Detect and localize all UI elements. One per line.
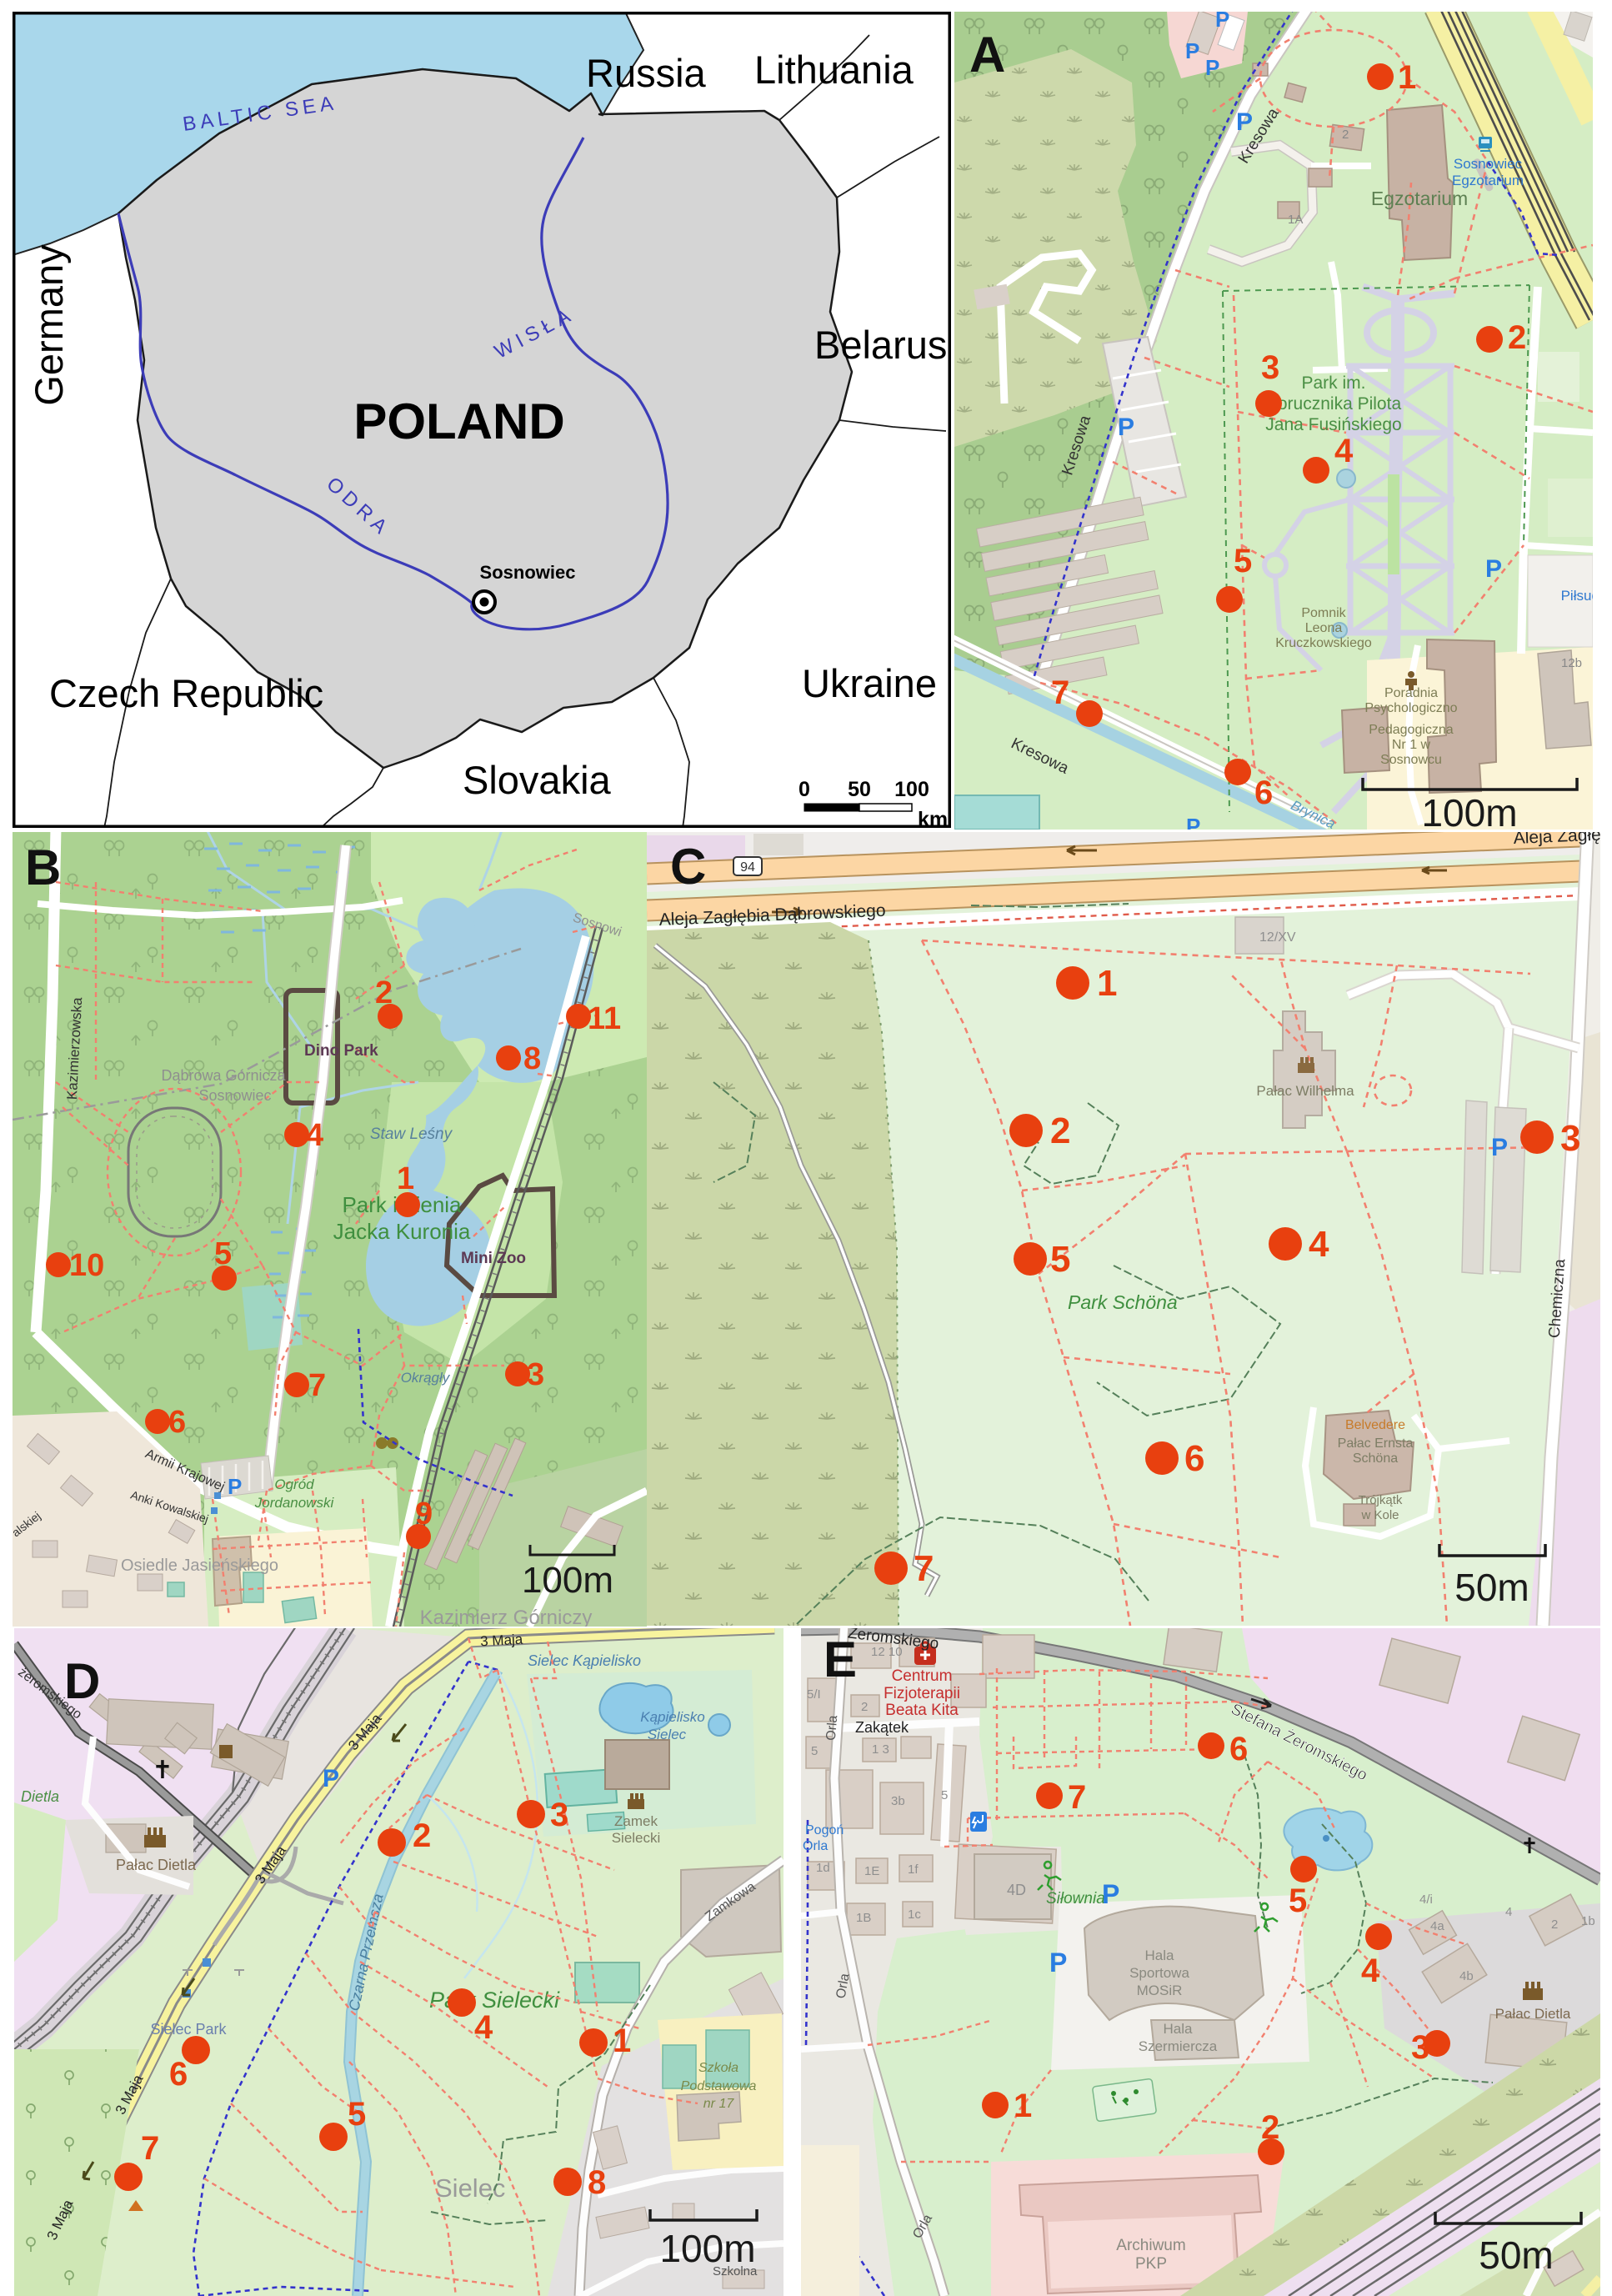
svg-text:6: 6 [1254,775,1273,811]
svg-text:3: 3 [1261,349,1279,386]
svg-text:Pałac Wilhelma: Pałac Wilhelma [1256,1083,1354,1099]
svg-text:3: 3 [527,1357,544,1392]
svg-text:Nr 1 w: Nr 1 w [1392,738,1431,752]
svg-text:Orla: Orla [803,1839,828,1853]
svg-text:MOSiR: MOSiR [1137,1983,1183,1998]
svg-text:12b: 12b [1561,656,1582,670]
svg-text:3: 3 [1411,2029,1429,2066]
svg-text:100: 100 [894,778,929,801]
svg-text:7: 7 [1068,1779,1086,1816]
svg-text:6: 6 [169,2056,188,2093]
svg-text:7: 7 [1051,674,1069,711]
svg-text:P: P [1491,1134,1508,1161]
svg-text:P: P [1215,12,1229,32]
svg-text:3: 3 [550,1797,568,1833]
svg-text:7: 7 [141,2130,159,2167]
svg-text:5: 5 [1050,1239,1070,1280]
svg-text:5: 5 [1289,1882,1307,1919]
svg-text:Hala: Hala [1145,1948,1175,1963]
svg-text:4: 4 [306,1118,323,1153]
svg-text:2: 2 [413,1817,431,1854]
svg-text:Poradnia: Poradnia [1384,686,1438,700]
svg-text:Park Schöna: Park Schöna [1068,1291,1178,1313]
svg-text:5: 5 [1234,543,1252,579]
svg-text:6: 6 [1184,1438,1204,1479]
svg-text:Psychologiczno: Psychologiczno [1364,701,1457,715]
svg-text:5: 5 [811,1744,818,1758]
svg-text:P: P [1205,55,1219,80]
svg-text:km: km [918,808,948,828]
svg-text:P: P [228,1474,242,1499]
svg-text:Orla: Orla [824,1715,841,1742]
svg-text:P: P [1485,555,1502,583]
svg-text:Pałac Ernsta: Pałac Ernsta [1338,1436,1414,1451]
svg-text:3b: 3b [891,1794,905,1808]
svg-text:7: 7 [914,1548,934,1589]
svg-text:4: 4 [1334,433,1354,469]
svg-text:Trójkątk: Trójkątk [1359,1493,1403,1507]
svg-text:8: 8 [588,2164,606,2201]
svg-text:4: 4 [1309,1224,1329,1265]
svg-text:5: 5 [941,1788,948,1802]
svg-text:Schöna: Schöna [1353,1451,1398,1466]
svg-text:1b: 1b [1581,1914,1595,1928]
svg-text:1E: 1E [864,1864,879,1878]
svg-text:Sosnowiec: Sosnowiec [198,1087,271,1104]
svg-text:Leona: Leona [1305,621,1343,635]
svg-text:1: 1 [1398,59,1416,96]
svg-text:1: 1 [613,2023,631,2059]
svg-text:Park im.: Park im. [1301,373,1365,393]
svg-text:2: 2 [1508,319,1526,356]
svg-text:4: 4 [1361,1953,1380,1989]
svg-text:Pałac Dietla: Pałac Dietla [1495,2006,1571,2022]
svg-text:4: 4 [474,2009,493,2046]
svg-text:94: 94 [740,860,755,875]
svg-text:Sportowa: Sportowa [1129,1965,1189,1981]
svg-text:4a: 4a [1430,1919,1444,1933]
svg-text:Pomnik: Pomnik [1301,606,1346,620]
svg-text:1: 1 [397,1161,414,1196]
svg-text:Belvedere: Belvedere [1345,1418,1405,1432]
svg-text:Egzotarium: Egzotarium [1452,173,1524,188]
svg-text:Egzotarium: Egzotarium [1371,188,1468,209]
svg-text:Porucznika Pilota: Porucznika Pilota [1266,394,1402,414]
svg-text:1d: 1d [816,1861,830,1875]
svg-text:Podstawowa: Podstawowa [681,2079,757,2093]
svg-text:Russia: Russia [586,51,707,95]
svg-text:P: P [323,1765,339,1792]
svg-text:Sielec Park: Sielec Park [150,2021,227,2038]
svg-text:Zakątek: Zakątek [855,1719,909,1736]
svg-text:P: P [1102,1879,1119,1909]
svg-text:1: 1 [1097,963,1117,1004]
svg-text:Jordanowski: Jordanowski [254,1495,335,1511]
svg-text:5: 5 [348,2096,366,2133]
svg-text:2: 2 [1050,1110,1070,1151]
svg-text:P: P [1185,38,1199,63]
svg-text:Sielecki: Sielecki [612,1830,661,1846]
svg-text:Kruczkowskiego: Kruczkowskiego [1275,636,1372,650]
svg-text:Pałac Dietla: Pałac Dietla [116,1857,197,1873]
svg-text:2: 2 [1261,2109,1279,2146]
svg-text:Sosnowiec: Sosnowiec [1454,156,1523,172]
svg-text:A: A [969,27,1005,83]
svg-text:Lithuania: Lithuania [754,48,914,92]
svg-text:1B: 1B [856,1911,871,1925]
svg-text:Germany: Germany [27,244,71,406]
svg-text:4: 4 [1505,1905,1512,1919]
svg-text:Hala: Hala [1164,2021,1194,2037]
svg-text:✝: ✝ [152,1757,173,1784]
svg-text:50m: 50m [1479,2233,1553,2277]
svg-text:Pogoń: Pogoń [805,1823,844,1837]
svg-text:1A: 1A [1288,213,1303,227]
svg-text:Kazimierz Górniczy: Kazimierz Górniczy [420,1607,593,1627]
svg-text:2: 2 [1342,128,1349,142]
svg-text:Mini Zoo: Mini Zoo [461,1250,526,1267]
svg-text:6: 6 [168,1405,186,1440]
svg-text:Archiwum: Archiwum [1116,2237,1185,2254]
svg-text:P: P [1049,1948,1067,1978]
svg-text:✝: ✝ [1520,1833,1539,1858]
svg-text:Jana Fusińskiego: Jana Fusińskiego [1265,415,1401,434]
svg-text:POLAND: POLAND [353,394,564,449]
svg-text:D: D [64,1653,100,1709]
svg-text:Fizjoterapii: Fizjoterapii [884,1685,960,1702]
svg-text:Piłsuds: Piłsuds [1561,588,1593,604]
svg-text:Zamek: Zamek [614,1813,658,1829]
svg-text:P: P [1236,108,1253,136]
svg-text:Pedagogiczna: Pedagogiczna [1369,723,1454,737]
svg-text:Sielec: Sielec [648,1727,687,1742]
svg-text:4/i: 4/i [1419,1892,1433,1907]
svg-text:Staw Leśny: Staw Leśny [370,1125,453,1143]
svg-text:Ogród: Ogród [274,1476,314,1492]
svg-text:9: 9 [415,1496,433,1532]
svg-text:1f: 1f [908,1862,919,1877]
svg-text:Sielec Kąpielisko: Sielec Kąpielisko [528,1652,641,1669]
svg-text:50: 50 [848,778,871,801]
svg-text:50m: 50m [1454,1566,1529,1609]
svg-text:Dino Park: Dino Park [304,1042,378,1060]
svg-text:1: 1 [1014,2088,1032,2124]
svg-text:w Kole: w Kole [1360,1508,1399,1522]
svg-text:5: 5 [214,1236,232,1271]
svg-text:2: 2 [861,1700,868,1714]
svg-text:PKP: PKP [1135,2255,1167,2273]
svg-text:100m: 100m [659,2227,755,2270]
svg-text:8: 8 [523,1041,541,1076]
svg-text:Czech Republic: Czech Republic [49,671,323,715]
svg-text:4b: 4b [1459,1969,1474,1983]
svg-text:Osiedle Jasieńskiego: Osiedle Jasieńskiego [121,1557,278,1575]
svg-text:2: 2 [375,975,393,1010]
svg-text:5/I: 5/I [807,1687,821,1702]
svg-text:Centrum: Centrum [892,1667,953,1685]
svg-text:Belarus: Belarus [814,323,947,367]
svg-text:P: P [1186,814,1200,830]
svg-text:1 3: 1 3 [872,1742,889,1757]
svg-text:100m: 100m [522,1560,613,1601]
svg-text:Szermiercza: Szermiercza [1139,2038,1218,2054]
svg-text:Siłownia: Siłownia [1046,1890,1105,1907]
svg-text:C: C [670,839,706,895]
svg-text:Sosnowcu: Sosnowcu [1380,753,1442,767]
svg-text:Slovakia: Slovakia [463,758,612,802]
svg-text:Dąbrowa Górnicza: Dąbrowa Górnicza [161,1067,286,1084]
svg-text:2: 2 [1551,1918,1558,1932]
svg-text:P: P [1118,414,1134,441]
svg-text:0: 0 [798,778,810,801]
svg-text:1c: 1c [908,1907,921,1922]
svg-text:Dietla: Dietla [21,1788,59,1805]
svg-text:12/XV: 12/XV [1259,930,1296,945]
svg-text:Beata Kita: Beata Kita [885,1702,959,1719]
svg-text:B: B [25,840,61,895]
svg-text:Jacka Kuronia: Jacka Kuronia [333,1219,471,1244]
svg-text:4D: 4D [1007,1882,1026,1898]
svg-text:3 Maja: 3 Maja [480,1632,523,1650]
svg-text:Sosnowiec: Sosnowiec [480,562,576,583]
svg-text:Okrągły: Okrągły [401,1370,451,1386]
svg-text:3: 3 [1560,1118,1580,1159]
svg-text:6: 6 [1229,1731,1248,1767]
svg-text:10: 10 [69,1248,104,1283]
svg-text:11: 11 [588,1001,621,1036]
svg-text:100m: 100m [1421,791,1517,830]
svg-text:Kąpielisko: Kąpielisko [640,1709,705,1725]
svg-text:Szkoła: Szkoła [698,2061,738,2075]
svg-text:7: 7 [308,1368,326,1403]
svg-text:nr 17: nr 17 [703,2097,735,2111]
svg-text:Ukraine: Ukraine [802,661,937,705]
